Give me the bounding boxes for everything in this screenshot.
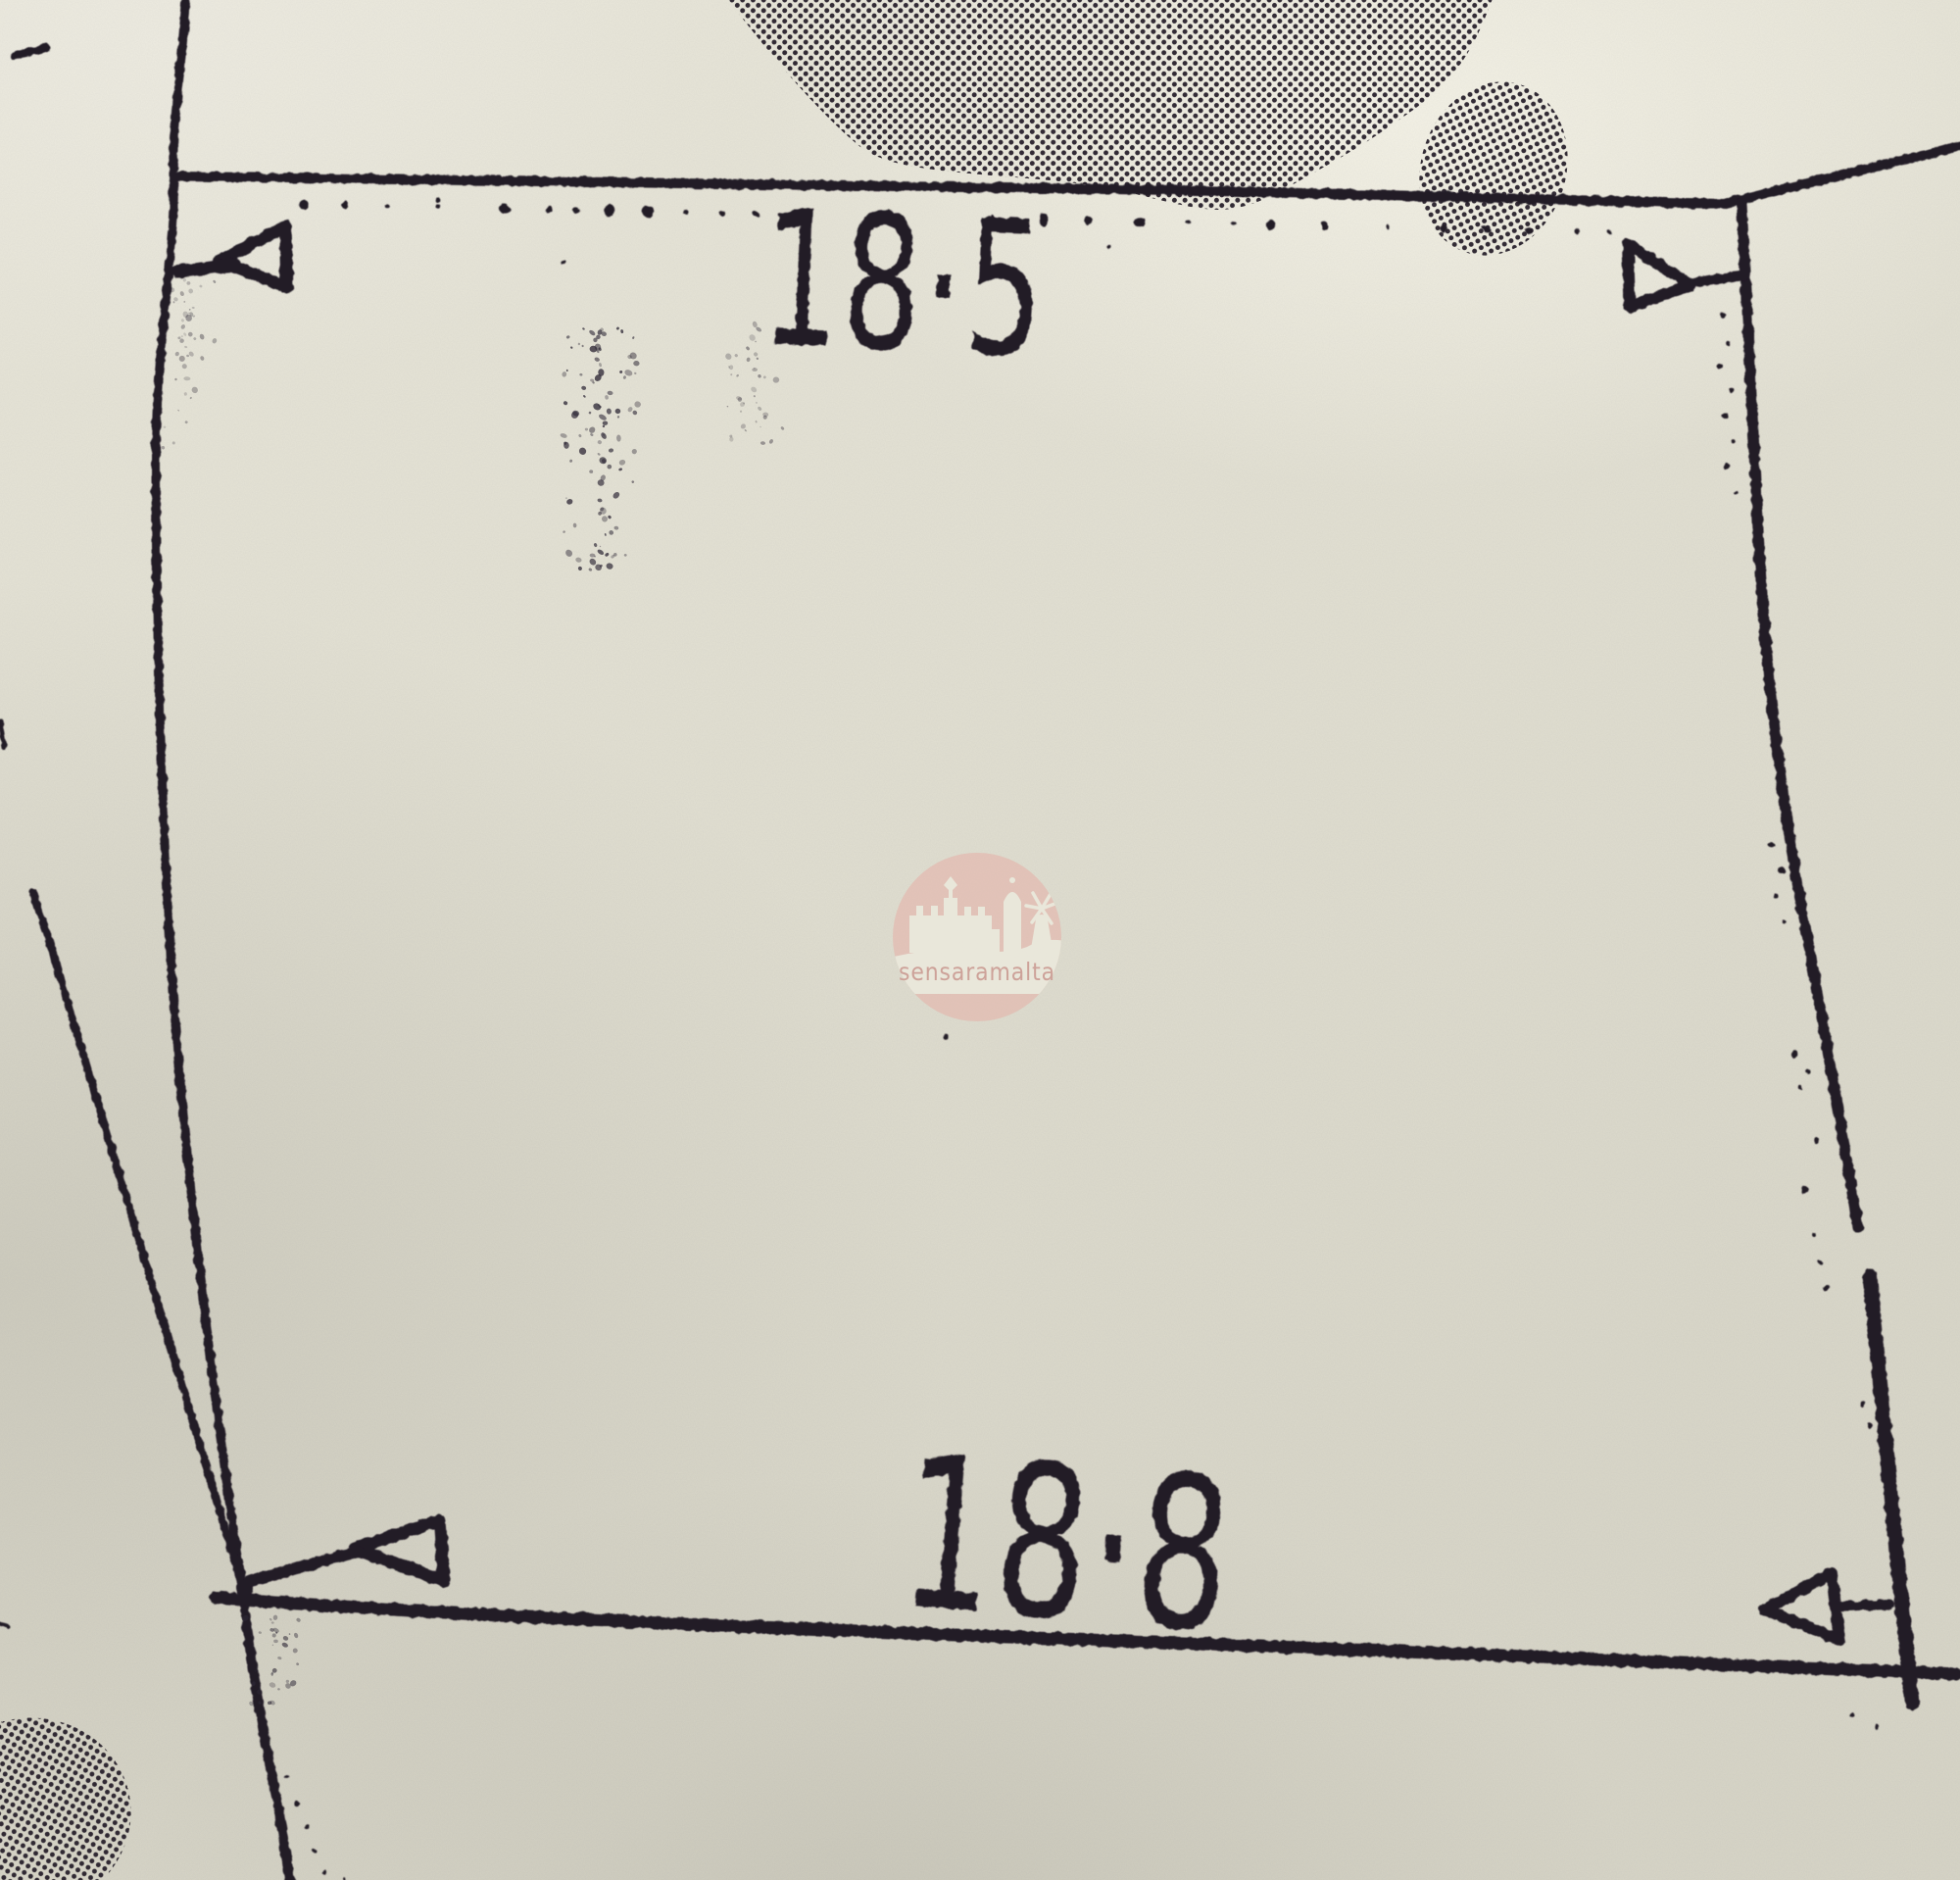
survey-plan-canvas: 18·5 18·8 sensaramalta	[0, 0, 1960, 1880]
bottom-dimension-label: 18·8	[894, 1410, 1241, 1680]
dot-mark	[752, 368, 758, 371]
dot-mark	[251, 1635, 253, 1637]
scanned-survey-plan: { "plan": { "top_dimension_label": "18·5…	[0, 0, 1960, 1880]
dot-mark	[603, 421, 609, 425]
watermark-text: sensaramalta	[899, 958, 1055, 987]
dot-mark	[322, 1869, 326, 1875]
top-dimension-label: 18·5	[758, 171, 1051, 399]
